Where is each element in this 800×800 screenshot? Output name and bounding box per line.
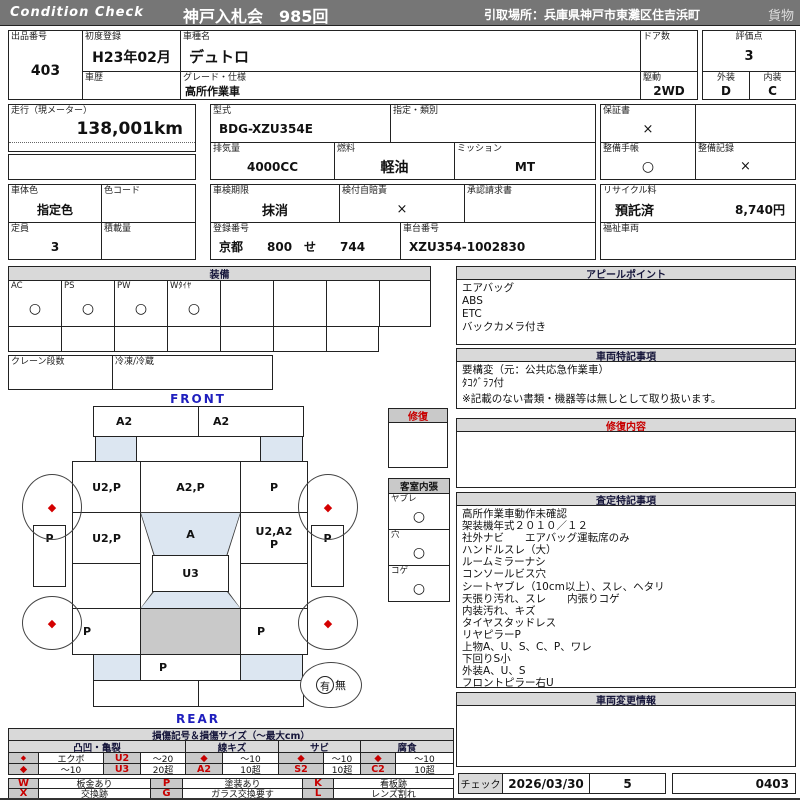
change-info-body xyxy=(456,705,796,767)
appeal-line: バックカメラ付き xyxy=(462,321,790,334)
fuel-cell: 燃料 軽油 xyxy=(334,142,455,180)
maintenance-book-label: 整備手帳 xyxy=(601,143,695,154)
equipment-label: AC xyxy=(9,281,61,291)
diagram-front-label: FRONT xyxy=(93,392,303,406)
windshield-corner-left xyxy=(95,436,137,462)
welfare-value xyxy=(601,234,795,259)
equipment-row2-cell xyxy=(114,326,168,352)
pickup-location: 引取場所：兵庫県神戸市東灘区住吉浜町 xyxy=(484,6,700,23)
equipment-mark xyxy=(221,282,273,326)
legend-symbol: U3 xyxy=(103,763,141,775)
appeal-points-header: アピールポイント xyxy=(456,266,796,280)
assessment-line: ルームミラーナシ xyxy=(462,556,790,568)
legend-size: 10超 xyxy=(323,763,361,775)
damage-code: P xyxy=(257,625,265,638)
crane-label: クレーン段数 xyxy=(9,356,112,367)
score-value: 3 xyxy=(703,42,795,71)
crane-cell: クレーン段数 xyxy=(8,355,113,390)
reefer-cell: 冷凍/冷蔵 xyxy=(112,355,273,390)
rear-panel-right: P xyxy=(240,608,308,655)
top-bar: Condition Check 神戸入札会 985回 引取場所：兵庫県神戸市東灘… xyxy=(0,0,800,26)
cab-panel-center: A2,P xyxy=(140,461,241,513)
assessment-line: 架装機年式２０１０／１２ xyxy=(462,520,790,532)
equipment-cell-empty xyxy=(379,280,431,327)
cabin-item-label: ヤブレ xyxy=(389,494,449,504)
damage-code: P xyxy=(83,625,91,638)
inspection-value: 抹消 xyxy=(211,196,339,222)
legend-size: 10超 xyxy=(222,763,279,775)
equipment-mark xyxy=(380,282,430,326)
assessment-line: タイヤスタッドレス xyxy=(462,617,790,629)
legend-symbol: ◆ xyxy=(8,763,39,775)
body-color-cell: 車体色 指定色 xyxy=(8,184,102,223)
damage-diamond-icon: ◆ xyxy=(374,753,381,764)
equipment-cell-empty xyxy=(273,280,327,327)
capacity-value: 3 xyxy=(9,234,101,259)
cabin-item-mark: ○ xyxy=(389,540,449,565)
equipment-row2-cell xyxy=(273,326,327,352)
brand-logo: Condition Check xyxy=(10,5,144,20)
inspection-label: 車検期限 xyxy=(211,185,339,196)
chassis-number-value: XZU354-1002830 xyxy=(401,234,595,259)
model-code-label: 型式 xyxy=(211,105,390,116)
legend-size: 20超 xyxy=(140,763,186,775)
assessment-line: フロントピラー右U xyxy=(462,677,790,689)
chassis-number-label: 車台番号 xyxy=(401,223,595,234)
damage-code: P xyxy=(270,481,278,494)
damage-diamond-icon: ◆ xyxy=(21,754,26,762)
rear-left-wheel: ◆ xyxy=(22,596,82,650)
body-panel-lower-right xyxy=(240,563,308,609)
rear-window-center: P xyxy=(140,654,241,681)
rear-bumper-right xyxy=(198,680,304,707)
damage-diamond-icon: ◆ xyxy=(324,502,332,513)
model-name-value: デュトロ xyxy=(181,42,640,71)
maintenance-record-label: 整備記録 xyxy=(696,143,795,154)
doors-cell: ドア数 xyxy=(640,30,698,72)
cabin-interior-header: 客室内張 xyxy=(388,478,450,494)
damage-code: A2 xyxy=(213,415,229,428)
lot-number-label: 出品番号 xyxy=(9,31,82,42)
equipment-row2-cell xyxy=(167,326,221,352)
damage-diamond-icon: ◆ xyxy=(200,753,207,764)
assessment-line: リヤピラーP xyxy=(462,629,790,641)
damage-code: U2,P xyxy=(92,481,121,494)
rear-bumper-left xyxy=(93,680,199,707)
interior-grade-value: C xyxy=(750,83,795,99)
lot-number-value: 403 xyxy=(9,42,82,99)
score-cell: 評価点 3 xyxy=(702,30,796,72)
assessment-line: ハンドルスレ（大） xyxy=(462,544,790,556)
warranty-value: × xyxy=(601,116,695,142)
category-badge: 貨物 xyxy=(768,5,794,24)
maintenance-book-value: ○ xyxy=(601,154,695,179)
equipment-cell-ac: AC ○ xyxy=(8,280,62,327)
insurance-value: × xyxy=(340,196,464,222)
repair-content-body xyxy=(456,431,796,488)
class-label: 指定・類別 xyxy=(391,105,595,116)
grade-spec-value: 高所作業車 xyxy=(181,83,640,99)
repair-flag-body xyxy=(388,422,448,468)
displacement-cell: 排気量 4000CC xyxy=(210,142,335,180)
windshield-corner-right xyxy=(260,436,303,462)
fuel-value: 軽油 xyxy=(335,154,454,179)
damage-code: A xyxy=(186,528,195,541)
legend-symbol: A2 xyxy=(185,763,223,775)
payload-label: 積載量 xyxy=(102,223,195,234)
auction-condition-sheet: Condition Check 神戸入札会 985回 引取場所：兵庫県神戸市東灘… xyxy=(0,0,800,800)
appeal-line: エアバッグ xyxy=(462,282,790,295)
model-name-cell: 車種名 デュトロ xyxy=(180,30,641,72)
assessment-line: シートヤブレ（10cm以上）、スレ、ヘタリ xyxy=(462,581,790,593)
approval-label: 承認請求書 xyxy=(465,185,595,196)
cabin-item-tear: ヤブレ ○ xyxy=(388,493,450,530)
equipment-mark: ○ xyxy=(9,291,61,326)
doors-label: ドア数 xyxy=(641,31,697,42)
model-code-cell: 型式 BDG-XZU354E xyxy=(210,104,391,143)
lot-number-cell: 出品番号 403 xyxy=(8,30,83,100)
equipment-row2-cell xyxy=(8,326,62,352)
interior-grade-cell: 内装 C xyxy=(749,71,796,100)
appeal-points-body: エアバッグ ABS ETC バックカメラ付き xyxy=(456,279,796,345)
fuel-label: 燃料 xyxy=(335,143,454,154)
equipment-mark: ○ xyxy=(62,291,114,326)
mileage-cell: 走行（現メーター） 138,001km xyxy=(8,104,196,152)
interior-grade-label: 内装 xyxy=(750,72,795,83)
class-cell: 指定・類別 xyxy=(390,104,596,143)
registration-number-label: 登録番号 xyxy=(211,223,400,234)
damage-code: U3 xyxy=(182,567,199,580)
repair-content-header: 修復内容 xyxy=(456,418,796,432)
legend-symbol: S2 xyxy=(278,763,324,775)
note-line: ﾀｺｸﾞﾗﾌ付 xyxy=(462,377,790,390)
drive-value: 2WD xyxy=(641,83,697,99)
equipment-cell-ps: PS ○ xyxy=(61,280,115,327)
mileage-divider xyxy=(9,142,195,151)
assessment-notes-header: 査定特記事項 xyxy=(456,492,796,506)
notes-disclaimer: ※記載のない書類・機器等は無しとして取り扱います。 xyxy=(462,393,790,406)
reefer-value xyxy=(113,367,272,389)
damage-diamond-icon: ◆ xyxy=(48,502,56,513)
grade-spec-label: グレード・仕様 xyxy=(181,72,640,83)
assessment-line: 天張り汚れ、スレ 内張りコゲ xyxy=(462,593,790,605)
cabin-item-burn: コゲ ○ xyxy=(388,565,450,602)
damage-code: A2,P xyxy=(176,481,204,494)
equipment-cell-empty xyxy=(326,280,380,327)
check-date: 2026/03/30 xyxy=(502,773,590,794)
warranty-empty-cell xyxy=(695,104,796,143)
capacity-cell: 定員 3 xyxy=(8,222,102,260)
equipment-mark: ○ xyxy=(115,291,167,326)
spare-tire-indicator: 有 無 xyxy=(300,662,362,708)
warranty-cell: 保証書 × xyxy=(600,104,696,143)
equipment-header: 装備 xyxy=(8,266,431,281)
exterior-grade-value: D xyxy=(703,83,749,99)
drive-label: 駆動 xyxy=(641,72,697,83)
color-code-value xyxy=(102,196,195,222)
assessment-line: 上物A、U、S、C、P、ワレ xyxy=(462,641,790,653)
transmission-cell: ミッション MT xyxy=(454,142,596,180)
check-label: チェック xyxy=(458,773,503,794)
equipment-label: PS xyxy=(62,281,114,291)
diagram-rear-label: REAR xyxy=(93,712,303,726)
crane-value xyxy=(9,367,112,389)
displacement-label: 排気量 xyxy=(211,143,334,154)
score-label: 評価点 xyxy=(703,31,795,42)
history-value xyxy=(83,83,180,99)
first-registration-cell: 初度登録 H23年02月 xyxy=(82,30,181,72)
warranty-label: 保証書 xyxy=(601,105,695,116)
color-code-cell: 色コード xyxy=(101,184,196,223)
note-line: 要構変（元：公共応急作業車） xyxy=(462,364,790,377)
body-center-box: U3 xyxy=(152,555,229,592)
approval-cell: 承認請求書 xyxy=(464,184,596,223)
damage-code: A2 xyxy=(116,415,132,428)
exterior-grade-cell: 外装 D xyxy=(702,71,750,100)
legend-size: ～10 xyxy=(38,763,104,775)
equipment-row2-cell xyxy=(326,326,379,352)
capacity-label: 定員 xyxy=(9,223,101,234)
damage-code: P xyxy=(159,661,167,674)
spare-no: 無 xyxy=(335,677,346,693)
front-bumper-right: A2 xyxy=(198,406,304,437)
repair-flag-header: 修復 xyxy=(388,408,448,423)
front-left-wheel: ◆ xyxy=(22,474,82,540)
grade-spec-cell: グレード・仕様 高所作業車 xyxy=(180,71,641,100)
doors-value xyxy=(641,42,697,71)
body-color-label: 車体色 xyxy=(9,185,101,196)
transmission-value: MT xyxy=(455,154,595,179)
check-count: 5 xyxy=(589,773,666,794)
auction-title: 神戸入札会 985回 xyxy=(183,3,328,27)
approval-value xyxy=(465,196,595,222)
recycle-status-value: 預託済 xyxy=(615,200,654,219)
insurance-label: 検付自賠責 xyxy=(340,185,464,196)
assessment-line: 高所作業車動作未確認 xyxy=(462,508,790,520)
displacement-value: 4000CC xyxy=(211,154,334,179)
assessment-line: 下回りS小 xyxy=(462,653,790,665)
cab-panel-left: U2,P xyxy=(72,461,141,513)
cargo-bed xyxy=(140,608,241,655)
equipment-label: Wﾀｲﾔ xyxy=(168,281,220,291)
rear-window-corner-left xyxy=(93,654,141,681)
exterior-grade-label: 外装 xyxy=(703,72,749,83)
vehicle-notes-body: 要構変（元：公共応急作業車） ﾀｺｸﾞﾗﾌ付 ※記載のない書類・機器等は無しとし… xyxy=(456,361,796,409)
chassis-number-cell: 車台番号 XZU354-1002830 xyxy=(400,222,596,260)
sheet-code: 0403 xyxy=(672,773,796,794)
inspection-cell: 車検期限 抹消 xyxy=(210,184,340,223)
maintenance-record-value: × xyxy=(696,154,795,179)
recycle-fee-label: リサイクル料 xyxy=(601,185,795,196)
first-registration-value: H23年02月 xyxy=(83,42,180,71)
body-color-value: 指定色 xyxy=(9,196,101,222)
equipment-cell-wtire: Wﾀｲﾔ ○ xyxy=(167,280,221,327)
model-code-value: BDG-XZU354E xyxy=(211,116,390,142)
equipment-row2-cell xyxy=(61,326,115,352)
equipment-cell-empty xyxy=(220,280,274,327)
front-bumper-left: A2 xyxy=(93,406,199,437)
damage-diamond-icon: ◆ xyxy=(297,753,304,764)
registration-number-cell: 登録番号 京都 800 せ 744 xyxy=(210,222,401,260)
equipment-mark xyxy=(274,282,326,326)
mileage-extra-cell xyxy=(8,154,196,180)
body-panel-mid-left: U2,P xyxy=(72,512,141,564)
body-panel-mid-right: U2,A2 P xyxy=(240,512,308,564)
color-code-label: 色コード xyxy=(102,185,195,196)
recycle-fee-cell: リサイクル料 預託済 8,740円 xyxy=(600,184,796,223)
recycle-fee-value: 8,740円 xyxy=(735,201,785,218)
assessment-notes-body: 高所作業車動作未確認 架装機年式２０１０／１２ 社外ナビ エアバッグ運転席のみ … xyxy=(456,505,796,688)
drive-cell: 駆動 2WD xyxy=(640,71,698,100)
class-value xyxy=(391,116,595,142)
cabin-item-mark: ○ xyxy=(389,504,449,529)
welfare-cell: 福祉車両 xyxy=(600,222,796,260)
maintenance-book-cell: 整備手帳 ○ xyxy=(600,142,696,180)
bed-front-trapezoid xyxy=(141,592,240,608)
front-right-wheel: ◆ xyxy=(298,474,358,540)
cabin-item-label: コゲ xyxy=(389,566,449,576)
first-registration-label: 初度登録 xyxy=(83,31,180,42)
equipment-row2-cell xyxy=(220,326,274,352)
assessment-line: 内装汚れ、キズ xyxy=(462,605,790,617)
rear-right-wheel: ◆ xyxy=(298,596,358,650)
mileage-label: 走行（現メーター） xyxy=(9,105,195,116)
welfare-label: 福祉車両 xyxy=(601,223,795,234)
assessment-line: コンソールビス穴 xyxy=(462,568,790,580)
windshield-center xyxy=(136,436,261,462)
reefer-label: 冷凍/冷蔵 xyxy=(113,356,272,367)
body-panel-lower-left xyxy=(72,563,141,609)
damage-diamond-icon: ◆ xyxy=(20,764,27,775)
equipment-mark: ○ xyxy=(168,291,220,326)
assessment-line: 社外ナビ エアバッグ運転席のみ xyxy=(462,532,790,544)
transmission-label: ミッション xyxy=(455,143,595,154)
change-info-header: 車両変更情報 xyxy=(456,692,796,706)
spare-yes-circled: 有 xyxy=(316,676,334,694)
history-cell: 車歴 xyxy=(82,71,181,100)
payload-cell: 積載量 xyxy=(101,222,196,260)
equipment-label: PW xyxy=(115,281,167,291)
assessment-line: 外装A、U、S xyxy=(462,665,790,677)
insurance-cell: 検付自賠責 × xyxy=(339,184,465,223)
rear-panel-left: P xyxy=(72,608,141,655)
legend-symbol: C2 xyxy=(360,763,396,775)
damage-diamond-icon: ◆ xyxy=(48,618,56,629)
cabin-item-mark: ○ xyxy=(389,576,449,601)
legend-size: 10超 xyxy=(395,763,454,775)
appeal-line: ETC xyxy=(462,308,790,321)
appeal-line: ABS xyxy=(462,295,790,308)
cab-back-trapezoid: A xyxy=(141,513,240,556)
equipment-mark xyxy=(327,282,379,326)
maintenance-record-cell: 整備記録 × xyxy=(695,142,796,180)
history-label: 車歴 xyxy=(83,72,180,83)
rear-window-corner-right xyxy=(240,654,303,681)
equipment-cell-pw: PW ○ xyxy=(114,280,168,327)
vehicle-notes-header: 車両特記事項 xyxy=(456,348,796,362)
damage-code: U2,A2 P xyxy=(256,525,293,551)
payload-value xyxy=(102,234,195,259)
model-name-label: 車種名 xyxy=(181,31,640,42)
mileage-value: 138,001km xyxy=(9,116,195,142)
cabin-item-label: 穴 xyxy=(389,530,449,540)
damage-code: U2,P xyxy=(92,532,121,545)
cabin-item-hole: 穴 ○ xyxy=(388,529,450,566)
registration-number-value: 京都 800 せ 744 xyxy=(211,234,400,259)
damage-diamond-icon: ◆ xyxy=(324,618,332,629)
